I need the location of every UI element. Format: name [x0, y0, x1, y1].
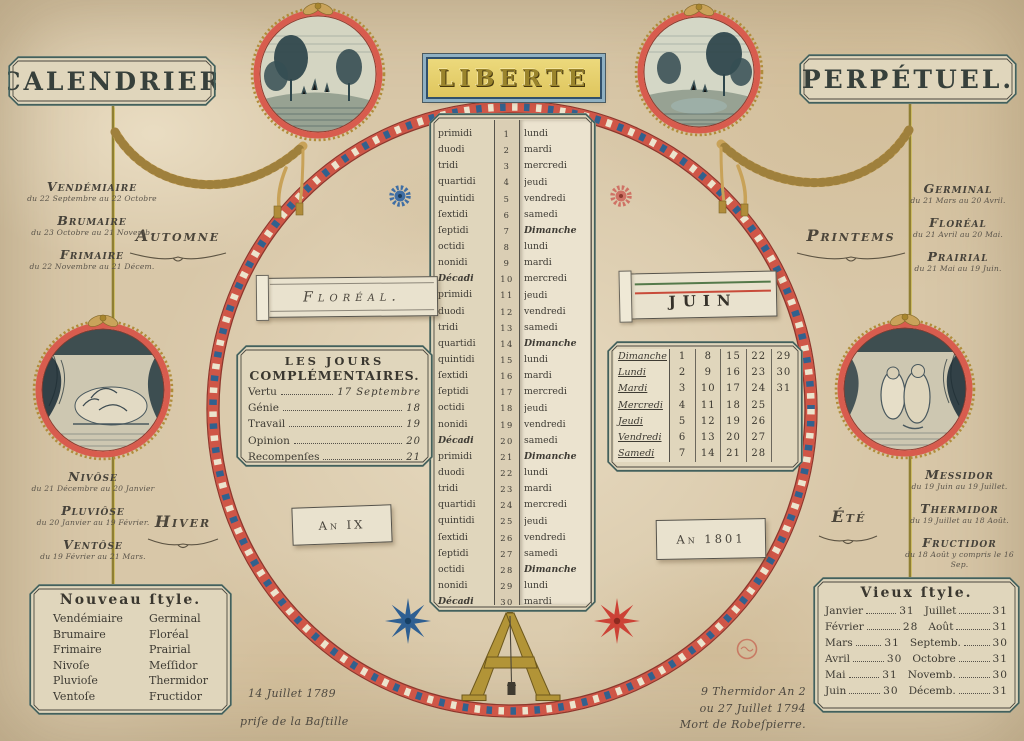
jours-title-line2: COMPLÉMENTAIRES. — [248, 368, 421, 383]
month-days-row: Janvier31Juillet31 — [825, 605, 1008, 621]
month-entry: Brumairedu 23 Octobre au 21 Novemb. — [2, 214, 182, 238]
slider-tab-icon[interactable] — [618, 270, 632, 322]
republican-day-cell: primidi — [436, 449, 494, 465]
weekday-cell: jeudi — [524, 514, 590, 530]
vieux-style-rows: Janvier31Juillet31Février28Août31Mars31S… — [813, 602, 1020, 701]
days-count: 31 — [899, 605, 914, 617]
month-days-row: Mai31Novemb.30 — [825, 669, 1008, 685]
jour-complementaire-row: Génie18 — [248, 402, 421, 418]
date-number: 23 — [746, 365, 771, 381]
jours-entries: Vertu17 SeptembreGénie18Travail19Opinion… — [248, 386, 421, 467]
month-range: du 19 Juillet au 18 Août. — [895, 516, 1024, 526]
republican-day-cell: quintidi — [436, 191, 494, 207]
day-number-cell: 6 — [495, 207, 519, 223]
date-number: 3 — [670, 381, 695, 397]
month-range: du 20 Janvier au 19 Février. — [2, 518, 184, 528]
day-number-cell: 8 — [495, 239, 519, 255]
jour-date: 20 — [406, 436, 421, 447]
month-entry: Frimairedu 22 Novembre au 21 Décem. — [2, 248, 182, 272]
nouveau-style-title: Nouveau ſtyle. — [29, 584, 232, 609]
day-number-cell: 26 — [495, 530, 519, 546]
republican-day-cell: Décadi — [436, 271, 494, 287]
jour-complementaire-row: Travail19 — [248, 418, 421, 434]
gregorian-year-window[interactable]: An 1801 — [656, 518, 767, 560]
month-range: du 22 Septembre au 22 Octobre — [2, 194, 182, 204]
day-number-cell: 9 — [495, 255, 519, 271]
weekday-name: Mercredi — [614, 398, 670, 414]
date-number: 7 — [670, 446, 695, 462]
republican-day-cell: tridi — [436, 158, 494, 174]
days-count: 31 — [993, 653, 1008, 665]
weekday-cell: Dimanche — [524, 562, 590, 578]
month-range: du 22 Novembre au 21 Décem. — [2, 262, 182, 272]
footnote-line: priſe de la Baſtille — [240, 714, 410, 729]
weekday-cell: mercredi — [524, 497, 590, 513]
republican-day-cell: duodi — [436, 465, 494, 481]
gregorian-month-name: Mars — [825, 637, 853, 649]
day-number-cell: 11 — [495, 287, 519, 303]
gregorian-month-name: Février — [825, 621, 864, 633]
date-number: 6 — [670, 430, 695, 446]
perpetuel-plaque: PERPÉTUEL. — [799, 54, 1017, 104]
medallion-top-left-engraving — [252, 8, 384, 140]
republican-month-name: Fructidor — [149, 689, 232, 705]
day-number-cell: 30 — [495, 594, 519, 610]
day-number-cell: 14 — [495, 336, 519, 352]
month-name: Prairial — [893, 250, 1023, 264]
dotted-leader — [867, 629, 900, 630]
republican-day-cell: quartidi — [436, 336, 494, 352]
gregorian-month-window[interactable]: JUIN — [629, 270, 778, 319]
dotted-leader — [956, 629, 989, 630]
weekday-cell: mercredi — [524, 158, 590, 174]
dotted-leader — [853, 661, 884, 662]
republican-day-cell: octidi — [436, 400, 494, 416]
month-entry: Thermidordu 19 Juillet au 18 Août. — [895, 502, 1024, 526]
weekday-cell: vendredi — [524, 304, 590, 320]
month-name: Pluviôse — [2, 504, 184, 518]
republican-day-cell: tridi — [436, 481, 494, 497]
day-number-cell: 21 — [495, 449, 519, 465]
calendrier-plaque: CALENDRIER — [8, 56, 216, 106]
jour-name: Génie — [248, 402, 279, 414]
weekday-grid-row: Vendredi6132027 — [614, 430, 796, 446]
weekday-cell: vendredi — [524, 530, 590, 546]
calendrier-plaque-label: CALENDRIER — [1, 67, 224, 96]
weekday-name: Mardi — [614, 381, 670, 397]
month-range: du 21 Mai au 19 Juin. — [893, 264, 1023, 274]
weekday-cell: mercredi — [524, 271, 590, 287]
date-number — [771, 446, 796, 462]
days-count: 28 — [903, 621, 918, 633]
dotted-leader — [964, 645, 990, 646]
republican-month-name: Brumaire — [53, 627, 149, 643]
weekday-slider-strip[interactable]: Dimanchelundimardimercredijeudivendredis… — [520, 120, 592, 605]
weekday-cell: Dimanche — [524, 449, 590, 465]
days-count: 30 — [887, 653, 902, 665]
days-count: 31 — [884, 637, 899, 649]
day-number-cell: 1 — [495, 126, 519, 142]
republican-year-window[interactable]: An IX — [291, 504, 392, 545]
vieux-style-table: Vieux ſtyle. Janvier31Juillet31Février28… — [813, 577, 1020, 713]
weekday-name: Samedi — [614, 446, 670, 462]
style-pair-row: FrimairePrairial — [53, 642, 232, 658]
weekday-name: Vendredi — [614, 430, 670, 446]
gregorian-month-name: Août — [928, 621, 953, 633]
weekday-grid-row: Jeudi5121926 — [614, 414, 796, 430]
day-number-cell: 4 — [495, 174, 519, 190]
weekday-name: Lundi — [614, 365, 670, 381]
date-number: 22 — [746, 349, 771, 365]
days-count: 31 — [993, 685, 1008, 697]
dotted-leader — [856, 645, 882, 646]
date-number: 14 — [695, 446, 720, 462]
date-number: 15 — [720, 349, 745, 365]
month-name: Nivôse — [2, 470, 184, 484]
weekday-grid-rows: Dimanche18152229Lundi29162330Mardi310172… — [607, 341, 803, 470]
day-number-cell: 25 — [495, 513, 519, 529]
liberte-banner-label: LIBERTE — [438, 65, 590, 92]
republican-month-window[interactable]: Floréal. — [266, 276, 438, 318]
month-name: Messidor — [895, 468, 1024, 482]
day-number-cell: 7 — [495, 223, 519, 239]
day-number-cell: 10 — [495, 271, 519, 287]
day-number-cell: 22 — [495, 465, 519, 481]
style-pair-row: NivoſeMeſſidor — [53, 658, 232, 674]
republican-day-cell: ſextidi — [436, 530, 494, 546]
dotted-leader — [323, 459, 402, 460]
date-number: 24 — [746, 381, 771, 397]
month-entry: Nivôsedu 21 Décembre au 20 Janvier — [2, 470, 184, 494]
month-days-row: Février28Août31 — [825, 621, 1008, 637]
month-entry: Fructidordu 18 Août y compris le 16 Sep. — [895, 536, 1024, 570]
day-concordance-strip: primididuoditridiquartidiquintidiſextidi… — [429, 113, 596, 612]
dotted-leader — [959, 677, 990, 678]
vieux-style-title: Vieux ſtyle. — [813, 577, 1020, 602]
dotted-leader — [959, 661, 990, 662]
weekday-grid-row: Mardi310172431 — [614, 381, 796, 397]
weekday-cell: lundi — [524, 126, 590, 142]
date-number: 25 — [746, 398, 771, 414]
day-number-cell: 18 — [495, 400, 519, 416]
date-number: 30 — [771, 365, 796, 381]
date-number: 16 — [720, 365, 745, 381]
month-entry: Floréaldu 21 Avril au 20 Mai. — [893, 216, 1023, 240]
date-number: 31 — [771, 381, 796, 397]
republican-month-name: Floréal — [149, 627, 232, 643]
jour-name: Recompenſes — [248, 451, 319, 463]
date-number: 21 — [720, 446, 745, 462]
jours-title-line1: LES JOURS — [248, 355, 421, 368]
style-pair-row: PluvioſeThermidor — [53, 673, 232, 689]
jour-complementaire-row: Recompenſes21 — [248, 451, 421, 467]
date-number: 10 — [695, 381, 720, 397]
footnote-robespierre: 9 Thermidor An 2ou 27 Juillet 1794Mort d… — [636, 684, 806, 734]
dotted-leader — [959, 613, 989, 614]
dotted-leader — [866, 613, 896, 614]
republican-day-cell: Décadi — [436, 433, 494, 449]
gregorian-month-name: Mai — [825, 669, 846, 681]
month-list-hiver: Nivôsedu 21 Décembre au 20 JanvierPluviô… — [2, 470, 184, 572]
day-number-cell: 29 — [495, 578, 519, 594]
gregorian-month-name: Octobre — [912, 653, 955, 665]
gregorian-month-name: Décemb. — [909, 685, 956, 697]
footnote-line: ou 27 Juillet 1794 — [636, 701, 806, 718]
date-number: 18 — [720, 398, 745, 414]
dotted-leader — [283, 410, 402, 411]
date-number: 28 — [746, 446, 771, 462]
month-name: Germinal — [893, 182, 1023, 196]
date-number: 17 — [720, 381, 745, 397]
date-number: 2 — [670, 365, 695, 381]
footnote-line: 9 Thermidor An 2 — [636, 684, 806, 701]
red-collection-stamp — [738, 640, 757, 659]
month-strip-color-lines — [635, 281, 771, 295]
jour-date: 17 Septembre — [337, 387, 421, 398]
days-count: 31 — [993, 621, 1008, 633]
month-days-row: Juin30Décemb.31 — [825, 685, 1008, 701]
republican-day-cell: Décadi — [436, 594, 494, 610]
season-label-printems: Printems — [793, 226, 909, 245]
day-number-cell: 24 — [495, 497, 519, 513]
dotted-leader — [294, 443, 402, 444]
republican-day-cell: octidi — [436, 562, 494, 578]
jour-name: Vertu — [248, 386, 277, 398]
month-range: du 19 Juin au 19 Juillet. — [895, 482, 1024, 492]
weekday-cell: jeudi — [524, 288, 590, 304]
weekday-cell: mardi — [524, 594, 590, 605]
dotted-leader — [849, 693, 880, 694]
date-number: 19 — [720, 414, 745, 430]
weekday-cell: mercredi — [524, 384, 590, 400]
month-range: du 21 Décembre au 20 Janvier — [2, 484, 184, 494]
gregorian-month-name: Juin — [825, 685, 846, 697]
republican-day-cell: ſeptidi — [436, 223, 494, 239]
weekday-cell: Dimanche — [524, 336, 590, 352]
jour-date: 21 — [406, 452, 421, 463]
weekday-grid-row: Lundi29162330 — [614, 365, 796, 381]
day-number-cell: 19 — [495, 417, 519, 433]
day-number-cell: 13 — [495, 320, 519, 336]
jour-name: Travail — [248, 418, 285, 430]
perpetual-calendar-artwork: CALENDRIER PERPÉTUEL. LIBERTE Automne Pr… — [0, 0, 1024, 741]
date-number: 11 — [695, 398, 720, 414]
day-number-cell: 23 — [495, 481, 519, 497]
republican-day-cell: octidi — [436, 239, 494, 255]
footnote-line: 14 Juillet 1789 — [240, 686, 410, 701]
date-number: 26 — [746, 414, 771, 430]
style-pair-row: BrumaireFloréal — [53, 627, 232, 643]
weekday-name: Dimanche — [614, 349, 670, 365]
republican-day-cell: ſeptidi — [436, 546, 494, 562]
style-pair-row: VentoſeFructidor — [53, 689, 232, 705]
republican-day-cell: nonidi — [436, 255, 494, 271]
dotted-leader — [959, 693, 990, 694]
weekday-cell: samedi — [524, 546, 590, 562]
slider-tab-icon[interactable] — [256, 275, 269, 321]
day-number-cell: 17 — [495, 384, 519, 400]
weekday-cell: lundi — [524, 578, 590, 594]
date-number: 1 — [670, 349, 695, 365]
gregorian-month-name: Septemb. — [910, 637, 961, 649]
month-list-automne: Vendémiairedu 22 Septembre au 22 Octobre… — [2, 180, 182, 282]
weekday-cell: samedi — [524, 207, 590, 223]
republican-day-cell: quintidi — [436, 352, 494, 368]
republican-month-name: Vendémiaire — [53, 611, 149, 627]
date-number — [771, 430, 796, 446]
date-number: 12 — [695, 414, 720, 430]
republican-day-cell: duodi — [436, 304, 494, 320]
jour-name: Opinion — [248, 435, 290, 447]
month-list-printems: Germinaldu 21 Mars au 20 Avril.Floréaldu… — [893, 182, 1023, 284]
month-entry: Vendémiairedu 22 Septembre au 22 Octobre — [2, 180, 182, 204]
day-number-cell: 20 — [495, 433, 519, 449]
weekday-number-grid: Dimanche18152229Lundi29162330Mardi310172… — [607, 341, 803, 472]
date-number: 27 — [746, 430, 771, 446]
weekday-cell: vendredi — [524, 191, 590, 207]
month-name: Ventôse — [2, 538, 184, 552]
republican-year-value: An IX — [318, 517, 365, 533]
level-A-plumb-symbol — [462, 603, 560, 701]
days-count: 31 — [993, 605, 1008, 617]
republican-day-cell: nonidi — [436, 417, 494, 433]
month-entry: Pluviôsedu 20 Janvier au 19 Février. — [2, 504, 184, 528]
nouveau-style-rows: VendémiaireGerminalBrumaireFloréalFrimai… — [29, 609, 232, 705]
month-entry: Germinaldu 21 Mars au 20 Avril. — [893, 182, 1023, 206]
date-number: 4 — [670, 398, 695, 414]
month-range: du 18 Août y compris le 16 Sep. — [895, 550, 1024, 570]
republican-month-name: Pluvioſe — [53, 673, 149, 689]
republican-day-cell: primidi — [436, 287, 494, 303]
nouveau-style-table: Nouveau ſtyle. VendémiaireGerminalBrumai… — [29, 584, 232, 715]
days-count: 30 — [883, 685, 898, 697]
weekday-name: Jeudi — [614, 414, 670, 430]
republican-month-name: Nivoſe — [53, 658, 149, 674]
weekday-cell: mardi — [524, 255, 590, 271]
weekday-cell: lundi — [524, 465, 590, 481]
month-entry: Ventôsedu 19 Février au 21 Mars. — [2, 538, 184, 562]
dotted-leader — [281, 394, 334, 395]
right-garland — [719, 130, 909, 216]
republican-month-name: Ventoſe — [53, 689, 149, 705]
republican-month-name: Prairial — [149, 642, 232, 658]
weekday-column-rows: Dimanchelundimardimercredijeudivendredis… — [524, 120, 590, 605]
republican-month-name: Frimaire — [53, 642, 149, 658]
weekday-cell: samedi — [524, 433, 590, 449]
liberte-banner: LIBERTE — [426, 57, 602, 99]
style-pair-row: VendémiaireGerminal — [53, 611, 232, 627]
medallion-top-right-engraving — [636, 9, 762, 135]
date-number: 29 — [771, 349, 796, 365]
day-number-cell: 12 — [495, 304, 519, 320]
month-range: du 21 Avril au 20 Mai. — [893, 230, 1023, 240]
jour-complementaire-row: Vertu17 Septembre — [248, 386, 421, 402]
medallion-left-engraving — [34, 321, 172, 459]
republican-day-cell: ſeptidi — [436, 384, 494, 400]
date-number: 20 — [720, 430, 745, 446]
republican-day-cell: duodi — [436, 142, 494, 158]
weekday-grid-row: Samedi7142128 — [614, 446, 796, 462]
footnote-line: Mort de Robeſpierre. — [636, 717, 806, 734]
jour-date: 18 — [406, 403, 421, 414]
month-range: du 21 Mars au 20 Avril. — [893, 196, 1023, 206]
weekday-cell: mardi — [524, 368, 590, 384]
blue-rosette — [392, 188, 409, 205]
day-number-cell: 2 — [495, 142, 519, 158]
day-number-column: 1234567891011121314151617181920212223242… — [494, 120, 520, 605]
perpetuel-plaque-label: PERPÉTUEL. — [802, 65, 1014, 94]
month-entry: Prairialdu 21 Mai au 19 Juin. — [893, 250, 1023, 274]
date-number: 8 — [695, 349, 720, 365]
date-number: 9 — [695, 365, 720, 381]
date-number: 13 — [695, 430, 720, 446]
weekday-grid-row: Dimanche18152229 — [614, 349, 796, 365]
republican-month-name: Thermidor — [149, 673, 232, 689]
republican-day-cell: primidi — [436, 126, 494, 142]
gregorian-month-name: Avril — [825, 653, 850, 665]
medallion-right-engraving — [836, 320, 974, 458]
days-count: 31 — [882, 669, 897, 681]
month-name: Fructidor — [895, 536, 1024, 550]
day-number-cell: 28 — [495, 562, 519, 578]
dotted-leader — [289, 426, 402, 427]
month-name: Vendémiaire — [2, 180, 182, 194]
month-range: du 19 Février au 21 Mars. — [2, 552, 184, 562]
jours-complementaires-box: LES JOURS COMPLÉMENTAIRES. Vertu17 Septe… — [236, 345, 433, 467]
republican-day-cell: ſextidi — [436, 207, 494, 223]
month-list-ete: Messidordu 19 Juin au 19 Juillet.Thermid… — [895, 468, 1024, 580]
month-days-row: Mars31Septemb.30 — [825, 637, 1008, 653]
date-number — [771, 414, 796, 430]
month-name: Frimaire — [2, 248, 182, 262]
day-number-cell: 27 — [495, 546, 519, 562]
republican-day-cell: quartidi — [436, 497, 494, 513]
gregorian-month-name: Janvier — [825, 605, 863, 617]
days-count: 30 — [993, 637, 1008, 649]
weekday-cell: jeudi — [524, 401, 590, 417]
day-number-cell: 3 — [495, 158, 519, 174]
gregorian-month-value: JUIN — [668, 291, 737, 310]
month-name: Floréal — [893, 216, 1023, 230]
day-number-cell: 15 — [495, 352, 519, 368]
weekday-cell: jeudi — [524, 175, 590, 191]
weekday-grid-row: Mercredi4111825 — [614, 398, 796, 414]
weekday-cell: mardi — [524, 481, 590, 497]
weekday-cell: lundi — [524, 352, 590, 368]
day-number-cell: 16 — [495, 368, 519, 384]
month-days-row: Avril30Octobre31 — [825, 653, 1008, 669]
day-number-cell: 5 — [495, 191, 519, 207]
gregorian-month-name: Juillet — [925, 605, 957, 617]
republican-day-cell: tridi — [436, 320, 494, 336]
weekday-cell: lundi — [524, 239, 590, 255]
dotted-leader — [849, 677, 880, 678]
month-name: Thermidor — [895, 502, 1024, 516]
red-rosette — [613, 188, 630, 205]
gregorian-month-name: Novemb. — [908, 669, 956, 681]
gregorian-year-value: An 1801 — [676, 531, 745, 546]
weekday-cell: mardi — [524, 142, 590, 158]
month-range: du 23 Octobre au 21 Novemb. — [2, 228, 182, 238]
month-name: Brumaire — [2, 214, 182, 228]
republican-month-value: Floréal. — [303, 288, 401, 305]
footnote-bastille: 14 Juillet 1789priſe de la Baſtille — [240, 686, 410, 729]
republican-day-cell: quintidi — [436, 513, 494, 529]
month-entry: Messidordu 19 Juin au 19 Juillet. — [895, 468, 1024, 492]
weekday-cell: vendredi — [524, 417, 590, 433]
date-number — [771, 398, 796, 414]
republican-month-name: Meſſidor — [149, 658, 232, 674]
